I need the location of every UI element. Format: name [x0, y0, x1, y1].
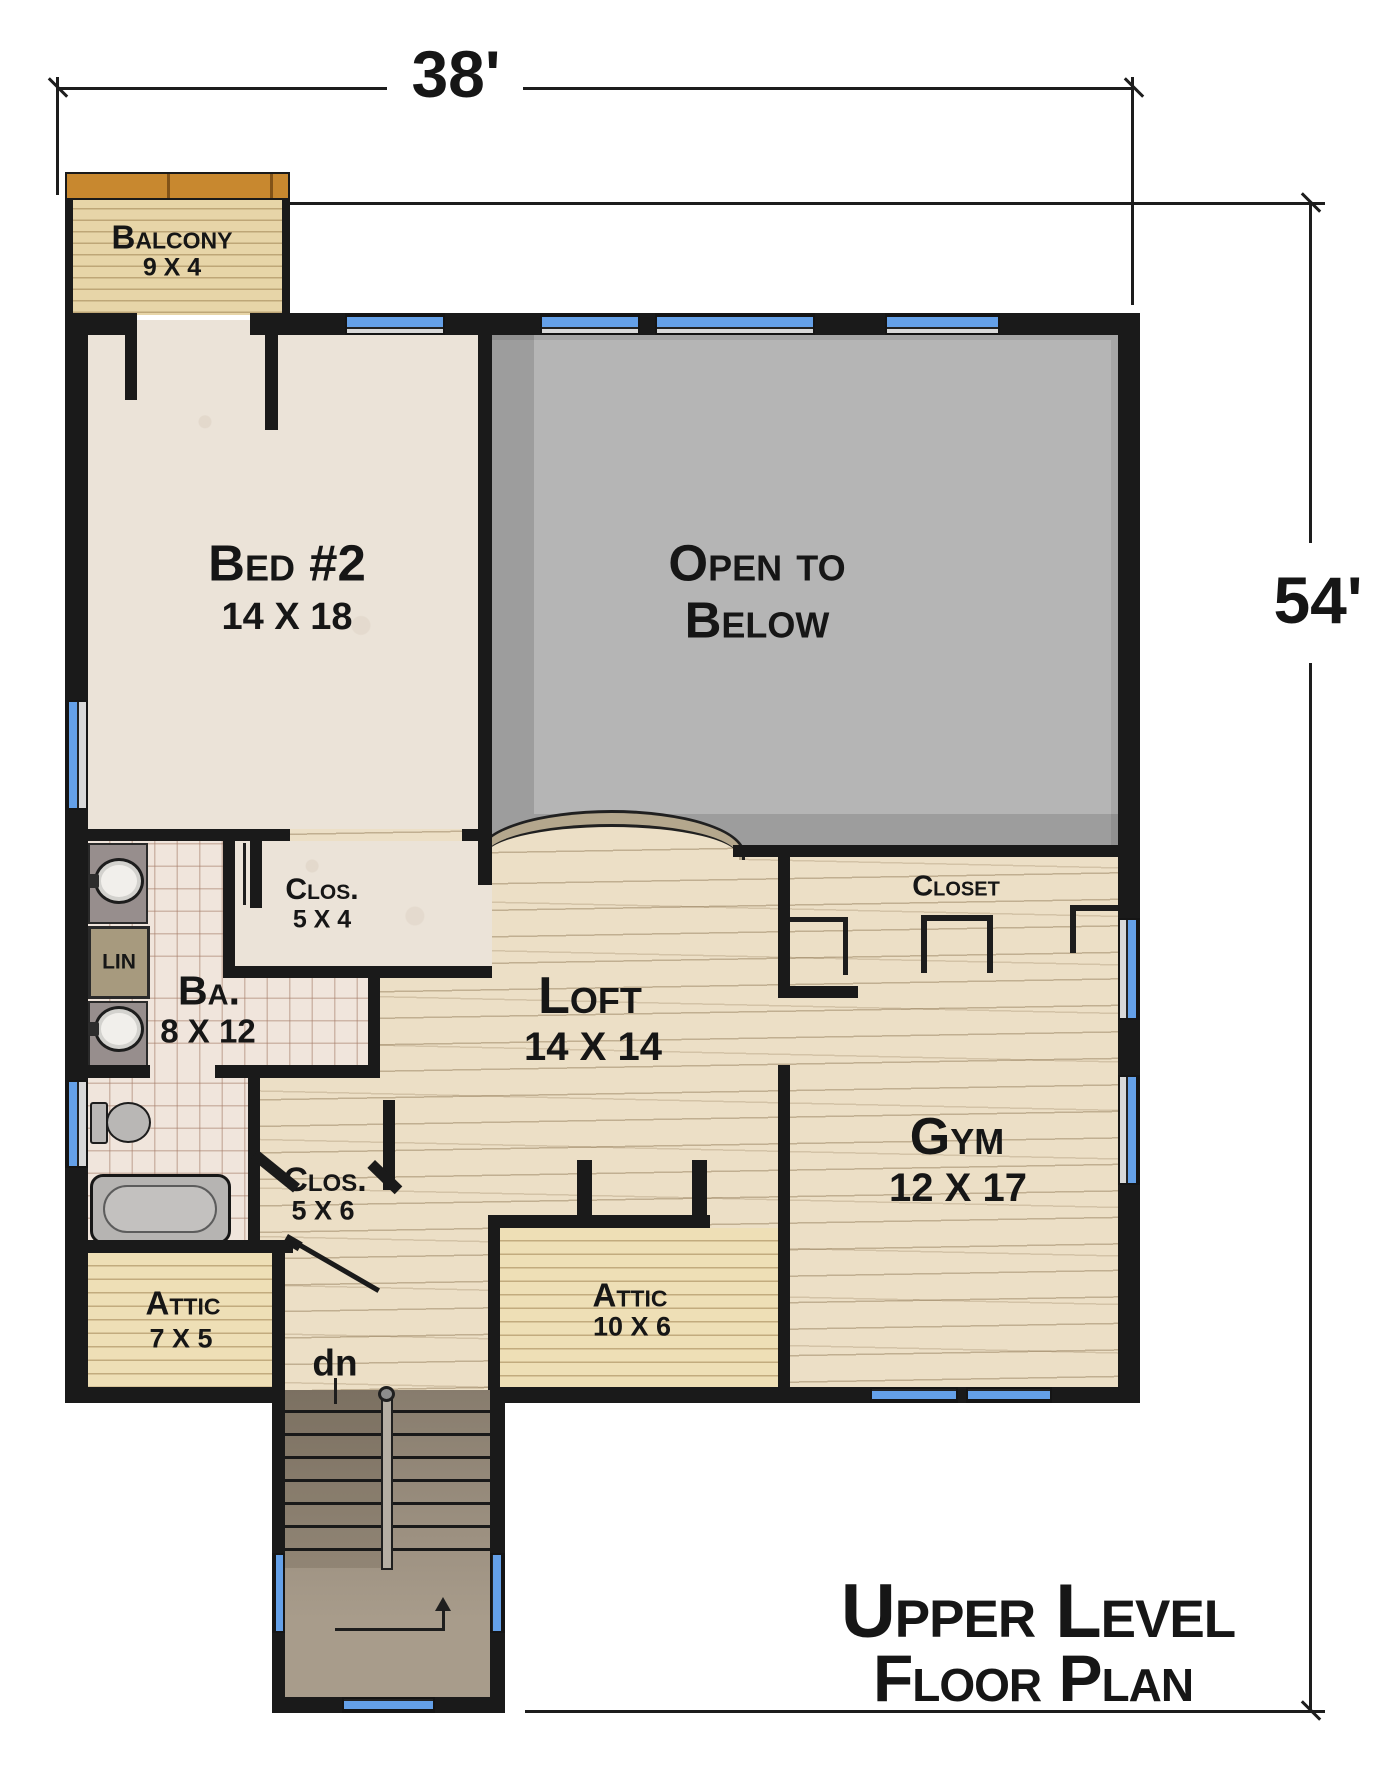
wall-segment	[250, 841, 262, 908]
stairs-down-label: dn	[312, 1345, 357, 1382]
plan-line	[442, 1610, 445, 1630]
wall-segment	[368, 978, 380, 1078]
bathtub-basin	[103, 1185, 217, 1233]
wall-segment	[223, 966, 492, 978]
wall-segment	[778, 1065, 790, 1390]
plan-line	[335, 1628, 445, 1631]
window	[870, 1387, 958, 1403]
stair-flight-left	[285, 1390, 381, 1568]
bath-size: 8 X 12	[160, 1015, 255, 1048]
plan-line	[843, 917, 848, 975]
wall-segment	[1118, 1020, 1140, 1075]
gym-closet-label: Closet	[912, 873, 1000, 902]
wall-segment	[272, 1697, 342, 1713]
bed2-label: Bed #2	[208, 538, 366, 589]
wall-segment	[65, 1240, 293, 1253]
wall-segment	[65, 810, 88, 1080]
wall-segment	[215, 1065, 380, 1078]
plan-line	[1070, 905, 1118, 911]
plan-line	[921, 915, 993, 921]
balcony-trim	[65, 172, 290, 200]
plan-line	[57, 87, 387, 90]
wall-segment	[692, 1160, 707, 1215]
plan-line	[987, 915, 993, 973]
window	[345, 313, 445, 335]
plan-line	[523, 87, 1133, 90]
stair-newel-post	[378, 1386, 395, 1402]
window	[342, 1697, 435, 1713]
plan-line	[290, 202, 1325, 205]
wall-segment	[1052, 1387, 1140, 1403]
floor-plan: Balcony 9 X 4 Bed #2 14 X 18 Open to Bel…	[0, 0, 1400, 1783]
gym-label: Gym	[910, 1111, 1004, 1163]
sheet-title-line1: Upper Level	[841, 1574, 1235, 1650]
wall-segment	[65, 313, 88, 700]
faucet-icon	[88, 1022, 99, 1036]
window	[885, 313, 1000, 335]
window	[65, 1080, 88, 1168]
wall-segment	[490, 1387, 870, 1403]
window	[966, 1387, 1052, 1403]
wall-segment	[640, 313, 655, 335]
wall-segment	[778, 986, 858, 998]
plan-line	[1309, 203, 1312, 543]
closet54-size: 5 X 4	[293, 908, 351, 933]
plan-line	[921, 915, 927, 973]
sink-icon	[94, 1006, 144, 1052]
window	[1118, 918, 1140, 1020]
window	[655, 313, 815, 335]
sheet-title-line2: Floor Plan	[873, 1645, 1193, 1711]
wall-segment	[488, 1228, 500, 1390]
floor-plan-page: Balcony 9 X 4 Bed #2 14 X 18 Open to Bel…	[0, 0, 1400, 1783]
height-dimension: 54'	[1273, 567, 1362, 633]
wall-segment	[88, 829, 290, 841]
closet54-label: Clos.	[285, 875, 358, 905]
wall-segment	[272, 1240, 285, 1403]
window	[490, 1553, 505, 1633]
stair-flight-right	[393, 1390, 490, 1568]
faucet-icon	[88, 874, 99, 888]
wall-segment	[435, 1697, 505, 1713]
wall-segment	[88, 1065, 150, 1078]
closet54-carpet	[235, 841, 492, 966]
plan-line	[56, 77, 59, 195]
wall-segment	[478, 335, 492, 885]
width-dimension: 38'	[411, 41, 500, 107]
stair-up-arrow-icon	[435, 1597, 451, 1611]
wall-segment	[65, 1168, 88, 1390]
wall-segment	[250, 313, 345, 335]
sink-icon	[94, 858, 144, 904]
open-to-below-label-line1: Open to	[668, 538, 845, 589]
toilet-bowl	[106, 1102, 151, 1143]
window	[1118, 1075, 1140, 1185]
open-to-below-label-line2: Below	[685, 595, 830, 646]
loft-size: 14 X 14	[524, 1027, 662, 1067]
wall-segment	[223, 841, 235, 978]
wall-segment	[778, 857, 790, 993]
wall-segment	[462, 829, 492, 841]
wall-segment	[65, 198, 73, 315]
wall-segment	[125, 313, 137, 400]
plan-line	[790, 917, 848, 922]
wall-segment	[445, 313, 540, 335]
plan-line	[1070, 905, 1076, 953]
closet56-size: 5 X 6	[291, 1198, 354, 1225]
balcony-size: 9 X 4	[143, 256, 201, 281]
plan-line	[1131, 77, 1134, 305]
wall-segment	[733, 845, 1118, 857]
loft-label: Loft	[538, 970, 642, 1022]
attic-small-label: Attic	[146, 1287, 221, 1320]
window	[540, 313, 640, 335]
wall-segment	[1118, 1185, 1140, 1403]
plan-line	[525, 1710, 1325, 1713]
wall-segment	[1118, 313, 1140, 918]
plan-line	[243, 843, 246, 905]
linen-label: LIN	[102, 952, 136, 973]
wall-segment	[958, 1387, 966, 1403]
wall-segment	[488, 1215, 710, 1228]
wall-segment	[577, 1160, 592, 1215]
stair-handrail	[381, 1390, 393, 1570]
attic-mid-size: 10 X 6	[593, 1314, 671, 1341]
wall-segment	[65, 1387, 285, 1403]
plan-line	[334, 1378, 337, 1404]
attic-small-size: 7 X 5	[149, 1326, 212, 1353]
gym-size: 12 X 17	[889, 1168, 1027, 1208]
plan-line	[1309, 663, 1312, 1711]
attic-mid-label: Attic	[593, 1279, 668, 1312]
wall-segment	[282, 198, 290, 315]
window	[272, 1553, 285, 1633]
wall-segment	[815, 313, 885, 335]
balcony-label: Balcony	[112, 221, 233, 254]
bed2-size: 14 X 18	[222, 598, 353, 636]
wall-segment	[265, 335, 278, 430]
window	[65, 700, 88, 810]
